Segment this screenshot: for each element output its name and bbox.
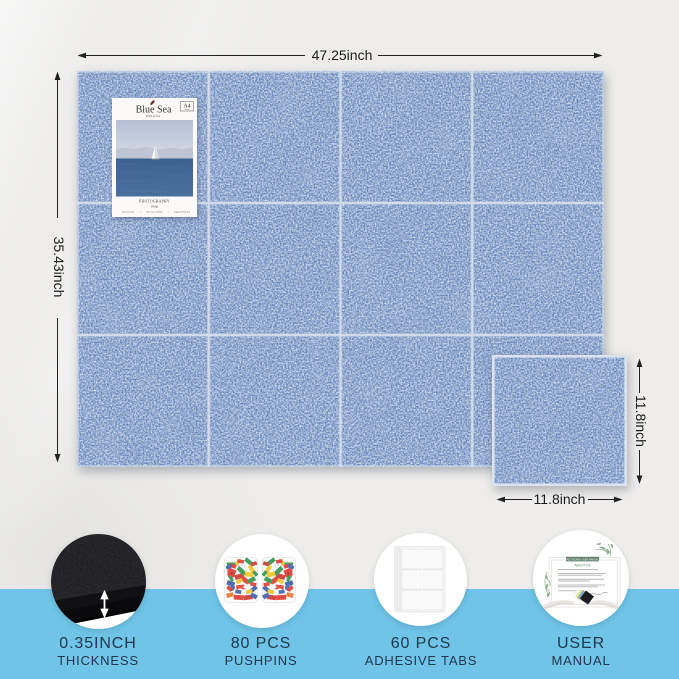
svg-text:FELT BOARD USER MANUAL: FELT BOARD USER MANUAL <box>566 558 599 561</box>
svg-text:47.25inch: 47.25inch <box>312 47 373 63</box>
svg-text:11.8inch: 11.8inch <box>534 491 586 507</box>
svg-text:11.8inch: 11.8inch <box>633 395 649 447</box>
svg-text:35.43inch: 35.43inch <box>51 237 67 298</box>
svg-text:ABOUT US: ABOUT US <box>574 564 590 568</box>
